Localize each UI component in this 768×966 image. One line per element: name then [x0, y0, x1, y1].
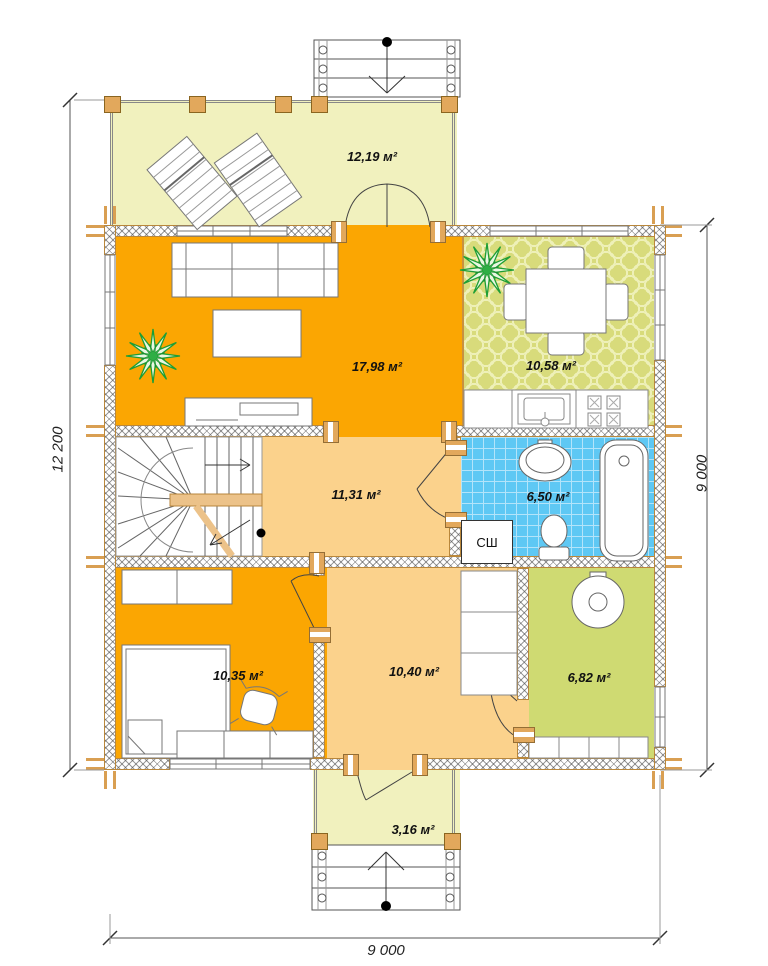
window-living-left	[105, 255, 115, 365]
wall-mid2	[104, 556, 666, 568]
log-end	[664, 425, 682, 437]
wall-right-c	[654, 747, 666, 770]
door-post	[412, 754, 428, 776]
log-end	[86, 425, 104, 437]
hall-area-label: 11,31 м²	[331, 488, 380, 502]
porch-post	[444, 833, 461, 850]
living-area-label: 17,98 м²	[352, 360, 402, 374]
dimension-right: 9 000	[695, 444, 710, 504]
door-post	[331, 221, 347, 243]
wall-right-b	[654, 360, 666, 687]
porch-floor	[313, 770, 460, 845]
log-end	[652, 771, 664, 789]
wall-left-a	[104, 225, 116, 255]
kitchen-floor	[462, 237, 654, 425]
window-kitchen-right	[655, 255, 665, 360]
wall-bedroom-b	[313, 637, 325, 758]
log-end	[86, 758, 104, 770]
wall-bottom-c	[412, 758, 666, 770]
entrance-threshold	[345, 225, 430, 237]
porch-left-edge	[314, 770, 317, 840]
window-bedroom-bottom	[170, 759, 310, 769]
terrace-right-edge	[452, 100, 455, 225]
door-post	[309, 627, 331, 643]
terrace-post	[441, 96, 458, 113]
dryer-cabinet-label: СШ	[476, 535, 497, 550]
terrace-post	[275, 96, 292, 113]
bottom-steps	[312, 845, 460, 911]
dimension-bottom: 9 000	[346, 943, 426, 958]
log-end	[86, 556, 104, 568]
door-post	[445, 440, 467, 456]
floor-plan: СШ	[0, 0, 768, 966]
top-steps	[314, 37, 460, 97]
wall-left-b	[104, 365, 116, 770]
porch-post	[311, 833, 328, 850]
terrace-post	[104, 96, 121, 113]
terrace-floor	[110, 100, 457, 225]
terrace-post	[311, 96, 328, 113]
bedroom-floor	[116, 568, 327, 758]
porch-right-edge	[452, 770, 455, 840]
back-hall-area-label: 10,40 м²	[389, 665, 439, 679]
wall-top-right	[430, 225, 666, 237]
wall-boiler-a	[517, 568, 529, 700]
porch-area-label: 3,16 м²	[392, 823, 435, 837]
boiler-floor	[529, 568, 654, 758]
log-end	[664, 225, 682, 237]
window-boiler-right	[655, 687, 665, 747]
log-end	[664, 758, 682, 770]
log-end	[104, 771, 116, 789]
hall-floor	[116, 437, 461, 556]
wall-mid1-left	[104, 425, 337, 437]
door-post	[309, 552, 325, 574]
living-floor	[116, 225, 462, 437]
door-post	[430, 221, 446, 243]
terrace-post	[189, 96, 206, 113]
terrace-area-label: 12,19 м²	[347, 150, 397, 164]
door-post	[323, 421, 339, 443]
boiler-area-label: 6,82 м²	[568, 671, 611, 685]
dryer-cabinet: СШ	[461, 520, 513, 564]
bathroom-area-label: 6,50 м²	[527, 490, 570, 504]
log-end	[652, 206, 664, 224]
door-post	[343, 754, 359, 776]
section-dot	[382, 37, 392, 47]
bedroom-area-label: 10,35 м²	[213, 669, 263, 683]
log-end	[86, 225, 104, 237]
wall-mid1-right	[449, 425, 666, 437]
wall-right-a	[654, 225, 666, 255]
dimension-left: 12 200	[51, 418, 66, 482]
door-post	[513, 727, 535, 743]
log-end	[104, 206, 116, 224]
log-end	[664, 556, 682, 568]
wall-top-left	[104, 225, 345, 237]
section-dot	[381, 901, 391, 911]
kitchen-area-label: 10,58 м²	[526, 359, 576, 373]
